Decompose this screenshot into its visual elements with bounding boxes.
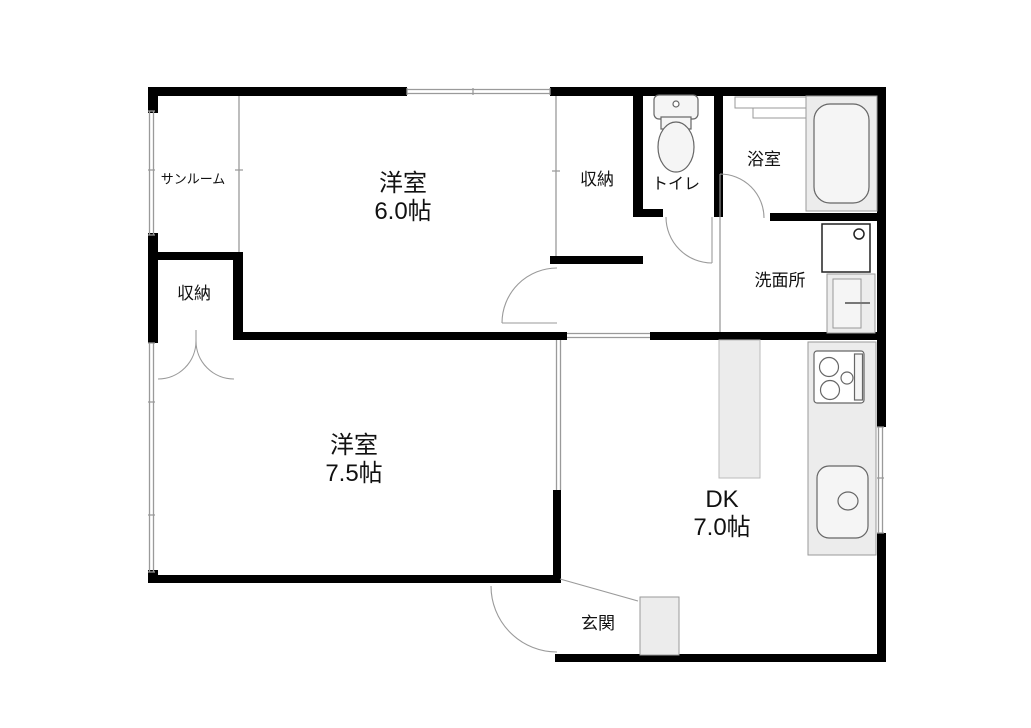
sunroom-label: サンルーム: [161, 173, 226, 188]
sliding-door-icon: [557, 340, 561, 490]
wall-segment: [633, 87, 643, 217]
kitchen-sink-icon: [817, 466, 868, 538]
stove-icon: [814, 351, 864, 403]
walls: [148, 87, 886, 662]
bedroom6-name: 洋室: [374, 170, 431, 198]
bath-label: 浴室: [747, 150, 781, 170]
washing-machine-icon: [822, 224, 870, 272]
dk-size: 7.0帖: [693, 514, 750, 542]
shoe-cabinet-icon: [640, 597, 679, 655]
wall-segment: [550, 256, 643, 264]
washroom-label: 洗面所: [755, 271, 806, 291]
kitchen-counter-icon: [719, 340, 760, 478]
bathtub-icon: [806, 96, 877, 211]
door-swing-icon: [666, 217, 712, 263]
bedroom75-name: 洋室: [325, 432, 382, 460]
wall-segment: [877, 533, 886, 662]
sliding-door-icon: [567, 334, 650, 338]
dk-label: DK 7.0帖: [693, 486, 750, 542]
wall-segment: [233, 332, 567, 340]
wall-segment: [553, 490, 561, 583]
window-icon: [877, 427, 884, 533]
door-swing-icon: [158, 330, 234, 379]
closet-top-label: 収納: [580, 170, 614, 190]
window-icon: [148, 111, 155, 235]
bedroom75-label: 洋室 7.5帖: [325, 432, 382, 488]
partitions: [235, 96, 720, 490]
door-swing-icon: [720, 174, 764, 218]
wall-segment: [770, 213, 886, 221]
bedroom6-size: 6.0帖: [374, 198, 431, 226]
wall-segment: [148, 87, 158, 113]
bedroom6-label: 洋室 6.0帖: [374, 170, 431, 226]
floorplan-drawing: [0, 0, 1031, 728]
closet-top-partition: [552, 96, 560, 256]
floor-plan: サンルーム 洋室 6.0帖 収納 トイレ 浴室 洗面所 収納 洋室 7.5帖 D…: [0, 0, 1031, 728]
window-icon: [148, 343, 155, 572]
wall-segment: [877, 87, 886, 427]
window-icon: [407, 88, 550, 95]
bath-counter-icon: [735, 97, 807, 118]
vanity-sink-icon: [827, 274, 875, 333]
bedroom75-size: 7.5帖: [325, 460, 382, 488]
sunroom-partition: [235, 96, 243, 252]
wall-segment: [148, 252, 243, 260]
wall-segment: [148, 575, 561, 583]
wall-segment: [555, 654, 886, 662]
wall-segment: [714, 87, 723, 217]
toilet-icon: [654, 95, 698, 172]
toilet-label: トイレ: [652, 176, 700, 194]
closet-left-label: 収納: [177, 284, 211, 304]
entrance-label: 玄関: [581, 614, 615, 634]
wall-segment: [643, 209, 663, 217]
wall-segment: [148, 233, 158, 343]
door-swing-icon: [491, 579, 638, 652]
kitchen-unit: [808, 342, 876, 555]
wall-segment: [233, 252, 243, 340]
dk-name: DK: [693, 486, 750, 514]
wall-segment: [150, 87, 407, 96]
door-swing-icon: [502, 268, 557, 323]
